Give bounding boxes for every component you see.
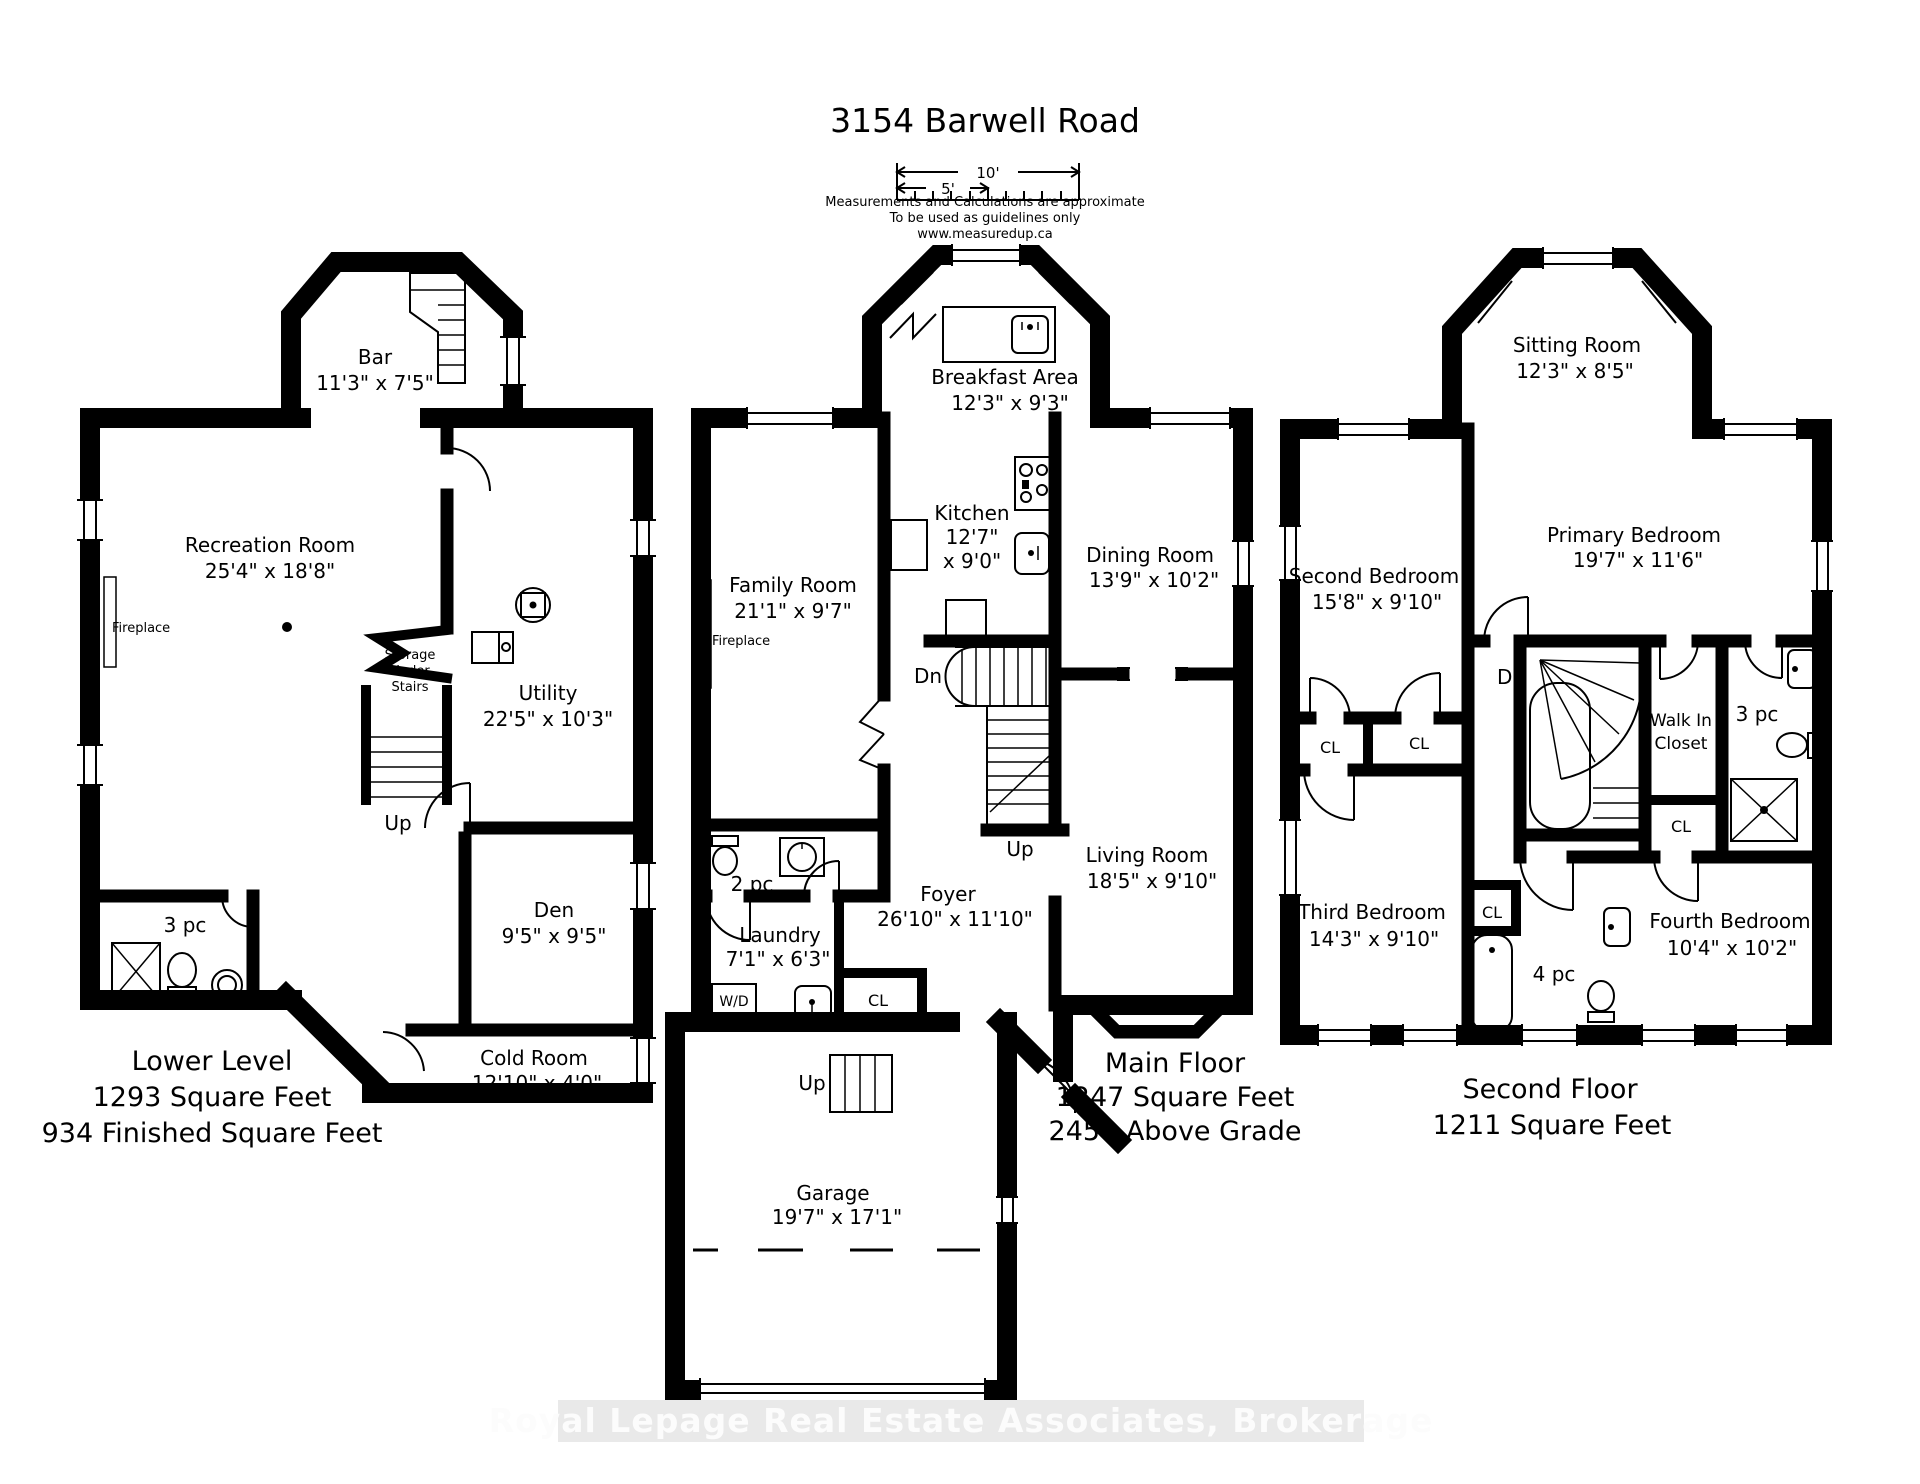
laundry-dims: 7'1" x 6'3" [726, 947, 831, 971]
kitchen-label: Kitchen [934, 501, 1009, 525]
family-room-label: Family Room [729, 573, 857, 597]
foyer-dims: 26'10" x 11'10" [877, 907, 1033, 931]
scale-10-label: 10' [976, 164, 999, 182]
den-dims: 9'5" x 9'5" [502, 924, 607, 948]
closet-label-2: CL [1409, 734, 1429, 753]
bar-stairs [410, 273, 465, 383]
lower-summary-2: 1293 Square Feet [93, 1082, 332, 1113]
garage-label: Garage [796, 1181, 869, 1205]
floorplan-drawing: 3154 Barwell Road 10' 5' [0, 0, 1920, 1484]
main-bath-label: 2 pc [731, 872, 774, 896]
storage-label-1: Storage [385, 648, 436, 663]
main-floor-plan: Breakfast Area 12'3" x 9'3" Kitchen 12'7… [675, 244, 1301, 1402]
second-bedroom-label: Second Bedroom [1289, 564, 1459, 588]
second-summary-2: 1211 Square Feet [1433, 1110, 1672, 1141]
primary-bedroom-label: Primary Bedroom [1547, 523, 1721, 547]
main-summary-2: 1247 Square Feet [1056, 1082, 1295, 1113]
sitting-room-label: Sitting Room [1513, 333, 1641, 357]
garage-dims: 19'7" x 17'1" [772, 1205, 902, 1229]
washer-dryer-label: W/D [719, 994, 748, 1010]
curved-stairs [1530, 660, 1642, 829]
foyer-label: Foyer [920, 882, 976, 906]
stove-icon [1015, 457, 1050, 510]
main-fireplace-label: Fireplace [712, 634, 770, 649]
second-dn-label: Dn [1497, 665, 1525, 689]
bar-label: Bar [358, 345, 393, 369]
main-summary-3: 2458 Above Grade [1049, 1116, 1302, 1147]
lower-up-label: Up [384, 811, 411, 835]
lower-summary-1: Lower Level [132, 1046, 293, 1077]
breakfast-label: Breakfast Area [931, 365, 1079, 389]
utility-dims: 22'5" x 10'3" [483, 707, 613, 731]
page-title: 3154 Barwell Road [830, 101, 1140, 140]
laundry-label: Laundry [739, 923, 821, 947]
main-up-label: Up [1006, 837, 1033, 861]
sitting-room-dims: 12'3" x 8'5" [1516, 359, 1634, 383]
storage-label-2: Under [390, 664, 430, 679]
breakfast-dims: 12'3" x 9'3" [951, 391, 1069, 415]
cold-room-label: Cold Room [480, 1046, 588, 1070]
kitchen-dims-2: x 9'0" [943, 549, 1001, 573]
note-approximate: Measurements and Calculations are approx… [825, 195, 1144, 210]
kitchen-island [943, 307, 1055, 362]
water-heater-icon [472, 632, 513, 663]
lower-fireplace-label: Fireplace [112, 621, 170, 636]
third-bedroom-dims: 14'3" x 9'10" [1309, 927, 1439, 951]
primary-bedroom-dims: 19'7" x 11'6" [1573, 548, 1703, 572]
living-room-label: Living Room [1086, 843, 1209, 867]
watermark: Royal Lepage Real Estate Associates, Bro… [489, 1400, 1434, 1442]
second-floor-plan: Sitting Room 12'3" x 8'5" Second Bedroom… [1279, 247, 1833, 1141]
walkin-label-2: Closet [1655, 734, 1708, 754]
den-label: Den [534, 898, 574, 922]
note-website: www.measuredup.ca [917, 227, 1053, 242]
garage-door [693, 1250, 985, 1402]
main-dn-label: Dn [914, 664, 942, 688]
utility-label: Utility [519, 681, 578, 705]
closet-label-4: CL [1482, 903, 1502, 922]
second-summary-1: Second Floor [1462, 1074, 1638, 1105]
fourth-bedroom-dims: 10'4" x 10'2" [1667, 936, 1797, 960]
second-bath3-fixtures [1731, 650, 1818, 841]
second-bath3-label: 3 pc [1736, 702, 1779, 726]
lower-stairs-up [366, 737, 447, 797]
closet-label-1: CL [1320, 738, 1340, 757]
garage-stairs [830, 1055, 892, 1112]
recreation-room-label: Recreation Room [185, 533, 355, 557]
family-room-dims: 21'1" x 9'7" [734, 599, 852, 623]
third-bedroom-label: Third Bedroom [1297, 900, 1446, 924]
floorplan-page: 3154 Barwell Road 10' 5' [0, 0, 1920, 1484]
lower-level-plan: Bar 11'3" x 7'5" Recreation Room 25'4" x… [42, 262, 656, 1149]
second-bedroom-dims: 15'8" x 9'10" [1312, 590, 1442, 614]
header: 3154 Barwell Road 10' 5' [825, 101, 1144, 242]
bar-dims: 11'3" x 7'5" [316, 371, 434, 395]
main-summary-1: Main Floor [1105, 1048, 1246, 1079]
brokerage-watermark: Royal Lepage Real Estate Associates, Bro… [489, 1401, 1434, 1440]
closet-label-3: CL [1671, 817, 1691, 836]
living-room-dims: 18'5" x 9'10" [1087, 869, 1217, 893]
main-stairs [945, 647, 1049, 830]
main-bath-fixtures [712, 836, 824, 876]
furnace-icon [516, 588, 550, 622]
walkin-label-1: Walk In [1650, 711, 1712, 731]
kitchen-sink-icon [1015, 533, 1049, 574]
lower-bath-label: 3 pc [164, 913, 207, 937]
cold-room-dims: 12'10" x 4'0" [472, 1071, 602, 1095]
lower-summary-3: 934 Finished Square Feet [42, 1118, 383, 1149]
garage-up-label: Up [798, 1071, 825, 1095]
kitchen-dims-1: 12'7" [946, 525, 999, 549]
note-guidelines: To be used as guidelines only [889, 211, 1081, 226]
support-post [282, 622, 292, 632]
dining-room-dims: 13'9" x 10'2" [1089, 568, 1219, 592]
main-closet-label: CL [868, 991, 888, 1010]
storage-label-3: Stairs [391, 680, 428, 695]
second-bath4-label: 4 pc [1533, 962, 1576, 986]
recreation-room-dims: 25'4" x 18'8" [205, 559, 335, 583]
fourth-bedroom-label: Fourth Bedroom [1649, 909, 1810, 933]
dining-room-label: Dining Room [1086, 543, 1214, 567]
